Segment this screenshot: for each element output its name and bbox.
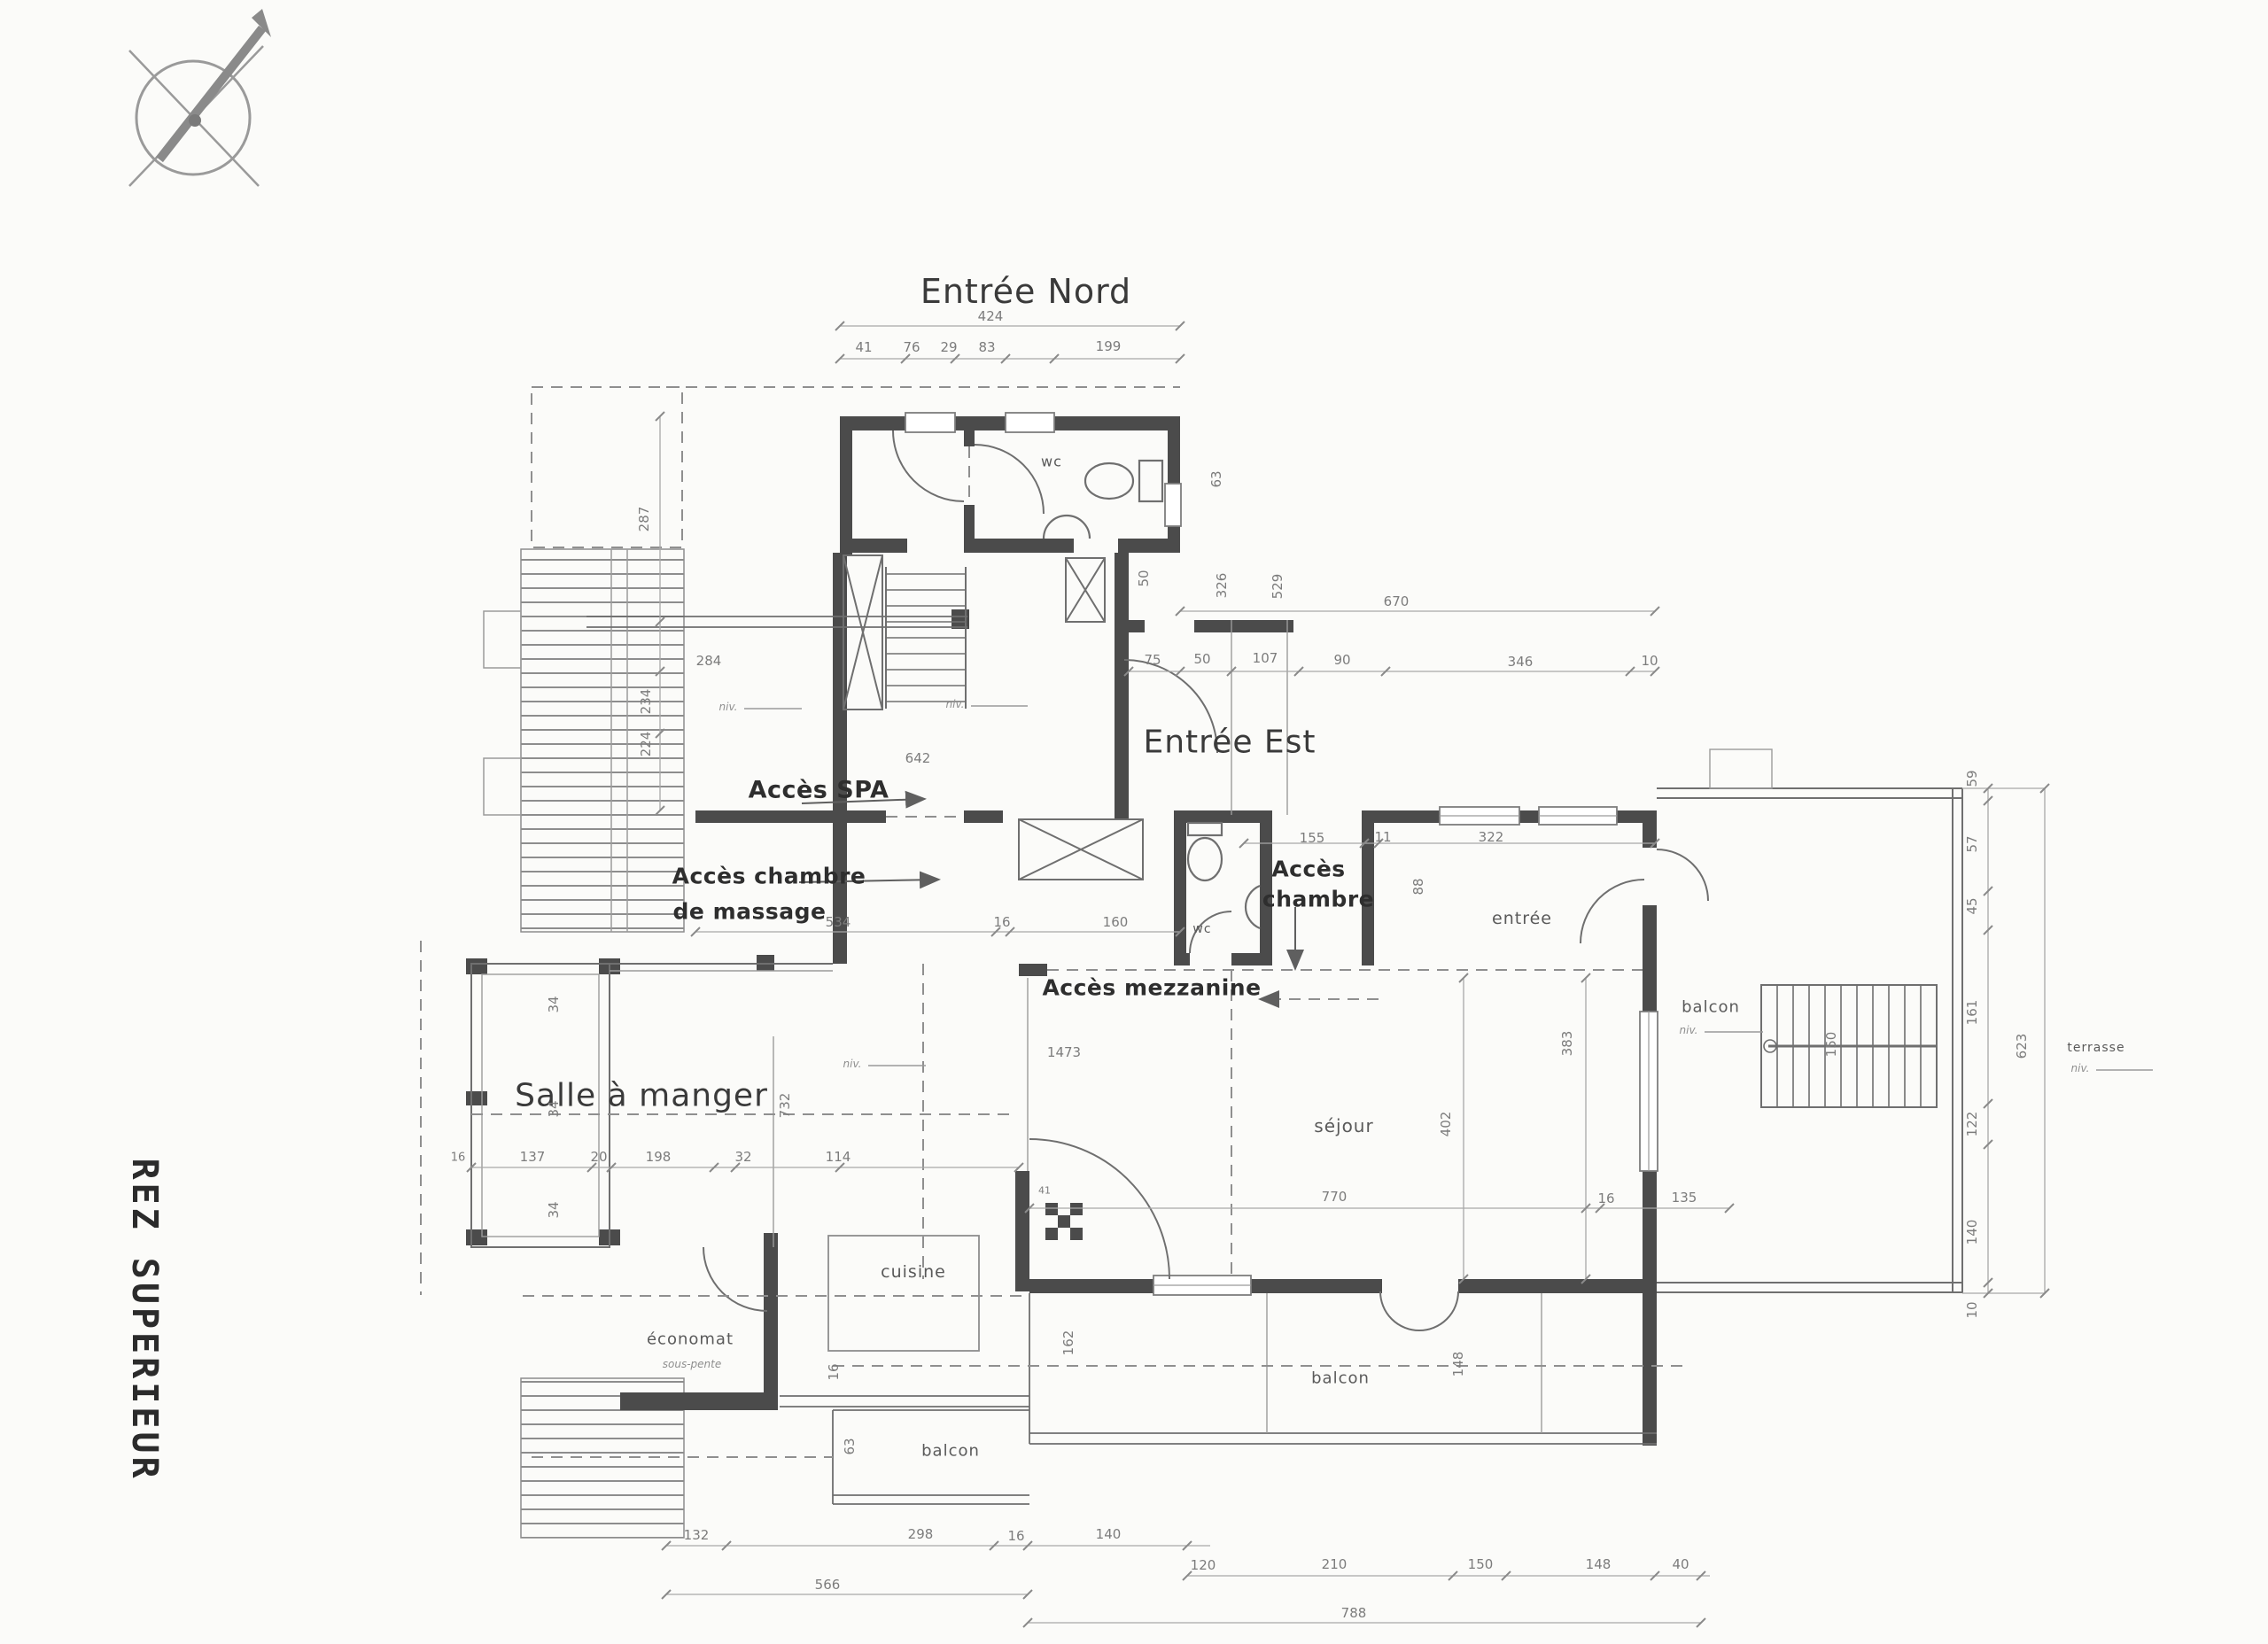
dim-402: 402: [1438, 1112, 1454, 1137]
niv-mark: niv.: [946, 698, 965, 710]
dim-120: 120: [1191, 1557, 1216, 1573]
dim-10: 10: [1641, 653, 1658, 669]
dim-534: 534: [826, 914, 851, 930]
dim-162: 162: [1060, 1330, 1076, 1356]
dim-50: 50: [1193, 651, 1210, 667]
dim-1473: 1473: [1047, 1044, 1081, 1060]
dim-34: 34: [546, 1100, 562, 1117]
acces-chambre-label-line2: chambre: [1262, 887, 1374, 912]
dim-45: 45: [1964, 897, 1980, 914]
dim-16: 16: [826, 1363, 842, 1380]
acces-chambre-massage-label-line2: de massage: [673, 899, 827, 925]
dim-424: 424: [978, 308, 1004, 324]
dim-88: 88: [1410, 878, 1426, 895]
floor-plan: Entrée NordEntrée EstSalle à mangerAccès…: [0, 0, 2268, 1644]
niv-mark: niv.: [843, 1058, 862, 1070]
dim-122: 122: [1964, 1112, 1980, 1137]
dim-199: 199: [1096, 338, 1122, 354]
dim-59: 59: [1964, 770, 1980, 787]
dim-114: 114: [826, 1149, 851, 1165]
dim-135: 135: [1672, 1190, 1697, 1206]
balcon-ouest-label: balcon: [921, 1442, 980, 1461]
dim-107: 107: [1253, 650, 1278, 666]
dim-326: 326: [1214, 573, 1230, 599]
sejour-label: séjour: [1314, 1115, 1373, 1136]
entree-room-label: entrée: [1492, 909, 1552, 928]
dim-63: 63: [1208, 470, 1224, 487]
dim-50: 50: [1136, 570, 1152, 586]
dim-63: 63: [842, 1438, 858, 1454]
dim-137: 137: [520, 1149, 546, 1165]
dim-132: 132: [684, 1527, 710, 1543]
dim-623: 623: [2014, 1034, 2030, 1059]
dim-284: 284: [696, 653, 722, 669]
wc-centre-label: wc: [1192, 922, 1211, 936]
dim-732: 732: [777, 1093, 793, 1119]
dim-41: 41: [1038, 1185, 1051, 1197]
economat-label: économat: [647, 1330, 734, 1349]
entree-est-label: Entrée Est: [1143, 725, 1316, 761]
dim-566: 566: [815, 1577, 841, 1593]
wc-nord-label: wc: [1041, 454, 1062, 470]
dim-34: 34: [546, 996, 562, 1012]
floor-title: REZ SUPERIEUR: [124, 1158, 165, 1481]
terrasse-label: terrasse: [2067, 1041, 2124, 1055]
niv-mark: niv.: [1680, 1024, 1698, 1036]
acces-chambre-massage-label-line1: Accès chambre: [672, 864, 866, 889]
dim-346: 346: [1508, 654, 1534, 670]
dim-76: 76: [903, 339, 920, 355]
text-layer: Entrée NordEntrée EstSalle à mangerAccès…: [0, 0, 2268, 1644]
dim-83: 83: [978, 339, 995, 355]
dim-140: 140: [1964, 1220, 1980, 1245]
dim-34: 34: [546, 1201, 562, 1218]
dim-148: 148: [1450, 1352, 1466, 1377]
acces-mezzanine-label: Accès mezzanine: [1042, 975, 1261, 1001]
dim-140: 140: [1096, 1526, 1122, 1542]
dim-298: 298: [908, 1526, 934, 1542]
dim-155: 155: [1300, 830, 1325, 846]
acces-chambre-label-line1: Accès: [1271, 857, 1345, 882]
dim-20: 20: [590, 1149, 607, 1165]
niv-mark: niv.: [719, 701, 738, 713]
dim-322: 322: [1479, 829, 1504, 845]
dim-788: 788: [1341, 1605, 1367, 1621]
dim-529: 529: [1270, 574, 1285, 600]
dim-383: 383: [1559, 1031, 1575, 1057]
dim-670: 670: [1384, 593, 1410, 609]
dim-150: 150: [1468, 1556, 1494, 1572]
dim-770: 770: [1322, 1189, 1348, 1205]
dim-16: 16: [451, 1152, 466, 1165]
dim-16: 16: [993, 914, 1010, 930]
niv-mark: niv.: [2071, 1062, 2090, 1074]
dim-16: 16: [1007, 1528, 1024, 1544]
dim-210: 210: [1322, 1556, 1348, 1572]
dim-90: 90: [1333, 652, 1350, 668]
dim-57: 57: [1964, 835, 1980, 852]
economat-sub-label: sous-pente: [663, 1358, 721, 1370]
balcon-est-label: balcon: [1682, 998, 1740, 1017]
dim-29: 29: [940, 339, 957, 355]
balcon-sud-label: balcon: [1311, 1369, 1370, 1388]
dim-150: 150: [1823, 1032, 1839, 1058]
dim-234: 234: [638, 689, 654, 715]
acces-spa-label: Accès SPA: [749, 777, 889, 804]
dim-32: 32: [734, 1149, 751, 1165]
dim-41: 41: [855, 339, 872, 355]
dim-198: 198: [646, 1149, 672, 1165]
entree-nord-label: Entrée Nord: [920, 272, 1131, 311]
dim-642: 642: [905, 750, 931, 766]
dim-161: 161: [1964, 1000, 1980, 1026]
dim-16: 16: [1597, 1190, 1614, 1206]
dim-10: 10: [1964, 1301, 1980, 1318]
dim-148: 148: [1586, 1556, 1612, 1572]
dim-160: 160: [1103, 914, 1129, 930]
dim-75: 75: [1144, 652, 1161, 668]
dim-11: 11: [1374, 829, 1391, 845]
dim-40: 40: [1672, 1556, 1689, 1572]
dim-287: 287: [636, 507, 652, 532]
dim-224: 224: [638, 732, 654, 757]
cuisine-label: cuisine: [881, 1262, 946, 1282]
